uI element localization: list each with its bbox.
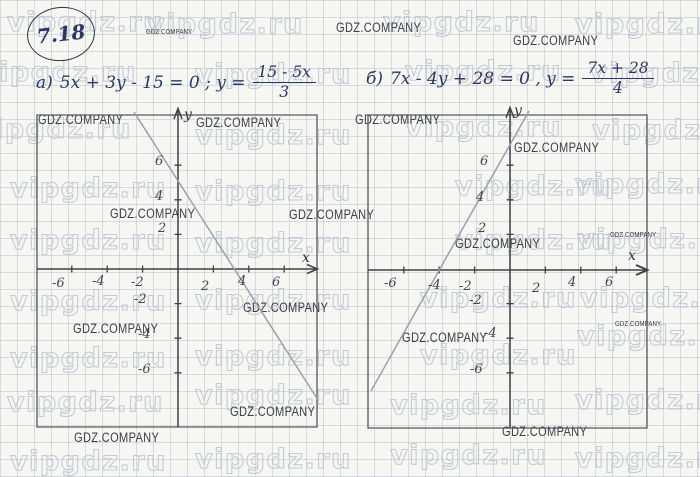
graph-b-y-label: y (514, 103, 522, 119)
graph-b-xtick: 2 (532, 281, 540, 296)
graph-a-xtick: 4 (238, 274, 246, 289)
equation-a-fraction: 15 - 5x 3 (253, 64, 316, 101)
equation-b: б) 7x - 4y + 28 = 0 , y = 7x + 28 4 (366, 60, 654, 97)
graph-a-x-label: x (302, 250, 310, 266)
graph-b-ytick: -2 (469, 293, 482, 308)
equation-b-body: 7x - 4y + 28 = 0 , y = (390, 69, 575, 89)
graph-b-ytick: 4 (476, 190, 484, 205)
graph-b-xtick: -2 (459, 279, 472, 294)
handwriting-layer: 7.18 а) 5x + 3y - 15 = 0 ; y = 15 - 5x 3… (0, 0, 700, 477)
graph-b-xtick: 4 (568, 275, 576, 290)
graph-a-y-label: y (184, 107, 192, 123)
equation-b-numerator: 7x + 28 (582, 60, 653, 79)
graph-a-ytick: -2 (134, 292, 147, 307)
graph-b-xtick: -6 (384, 276, 397, 291)
equation-b-denominator: 4 (613, 79, 623, 97)
graph-a-xtick: 6 (272, 275, 280, 290)
graph-b-ytick: -4 (484, 326, 497, 341)
equation-a-label: а) (36, 73, 53, 93)
equation-a-denominator: 3 (279, 83, 289, 101)
notebook-page: vipgdz.ru vipgdz.ru vipgdz.ru vipgdz.ru … (0, 0, 700, 477)
graph-a-xtick: -2 (131, 275, 144, 290)
equation-b-label: б) (366, 69, 383, 89)
graph-a-xtick: 2 (201, 279, 209, 294)
graph-a-ytick: 6 (155, 154, 163, 169)
graph-a-xtick: -6 (52, 276, 65, 291)
graph-b-ytick: 2 (478, 221, 486, 236)
equation-a-body: 5x + 3y - 15 = 0 ; y = (60, 73, 246, 93)
graph-b-ytick: 6 (480, 154, 488, 169)
graph-b-x-label: x (628, 248, 636, 264)
graph-a-xtick: -4 (92, 274, 105, 289)
graph-a-ytick: 2 (158, 221, 166, 236)
graph-a-ytick: -6 (138, 362, 151, 377)
graph-b-ytick: -6 (470, 362, 483, 377)
equation-b-fraction: 7x + 28 4 (582, 60, 653, 97)
graph-a-ytick: -4 (138, 327, 151, 342)
equation-a: а) 5x + 3y - 15 = 0 ; y = 15 - 5x 3 (36, 64, 316, 101)
graph-a-ytick: 4 (155, 189, 163, 204)
equation-a-numerator: 15 - 5x (253, 64, 316, 83)
graph-b-xtick: 6 (605, 275, 613, 290)
graph-b-xtick: -4 (428, 278, 441, 293)
problem-number: 7.18 (24, 4, 97, 65)
